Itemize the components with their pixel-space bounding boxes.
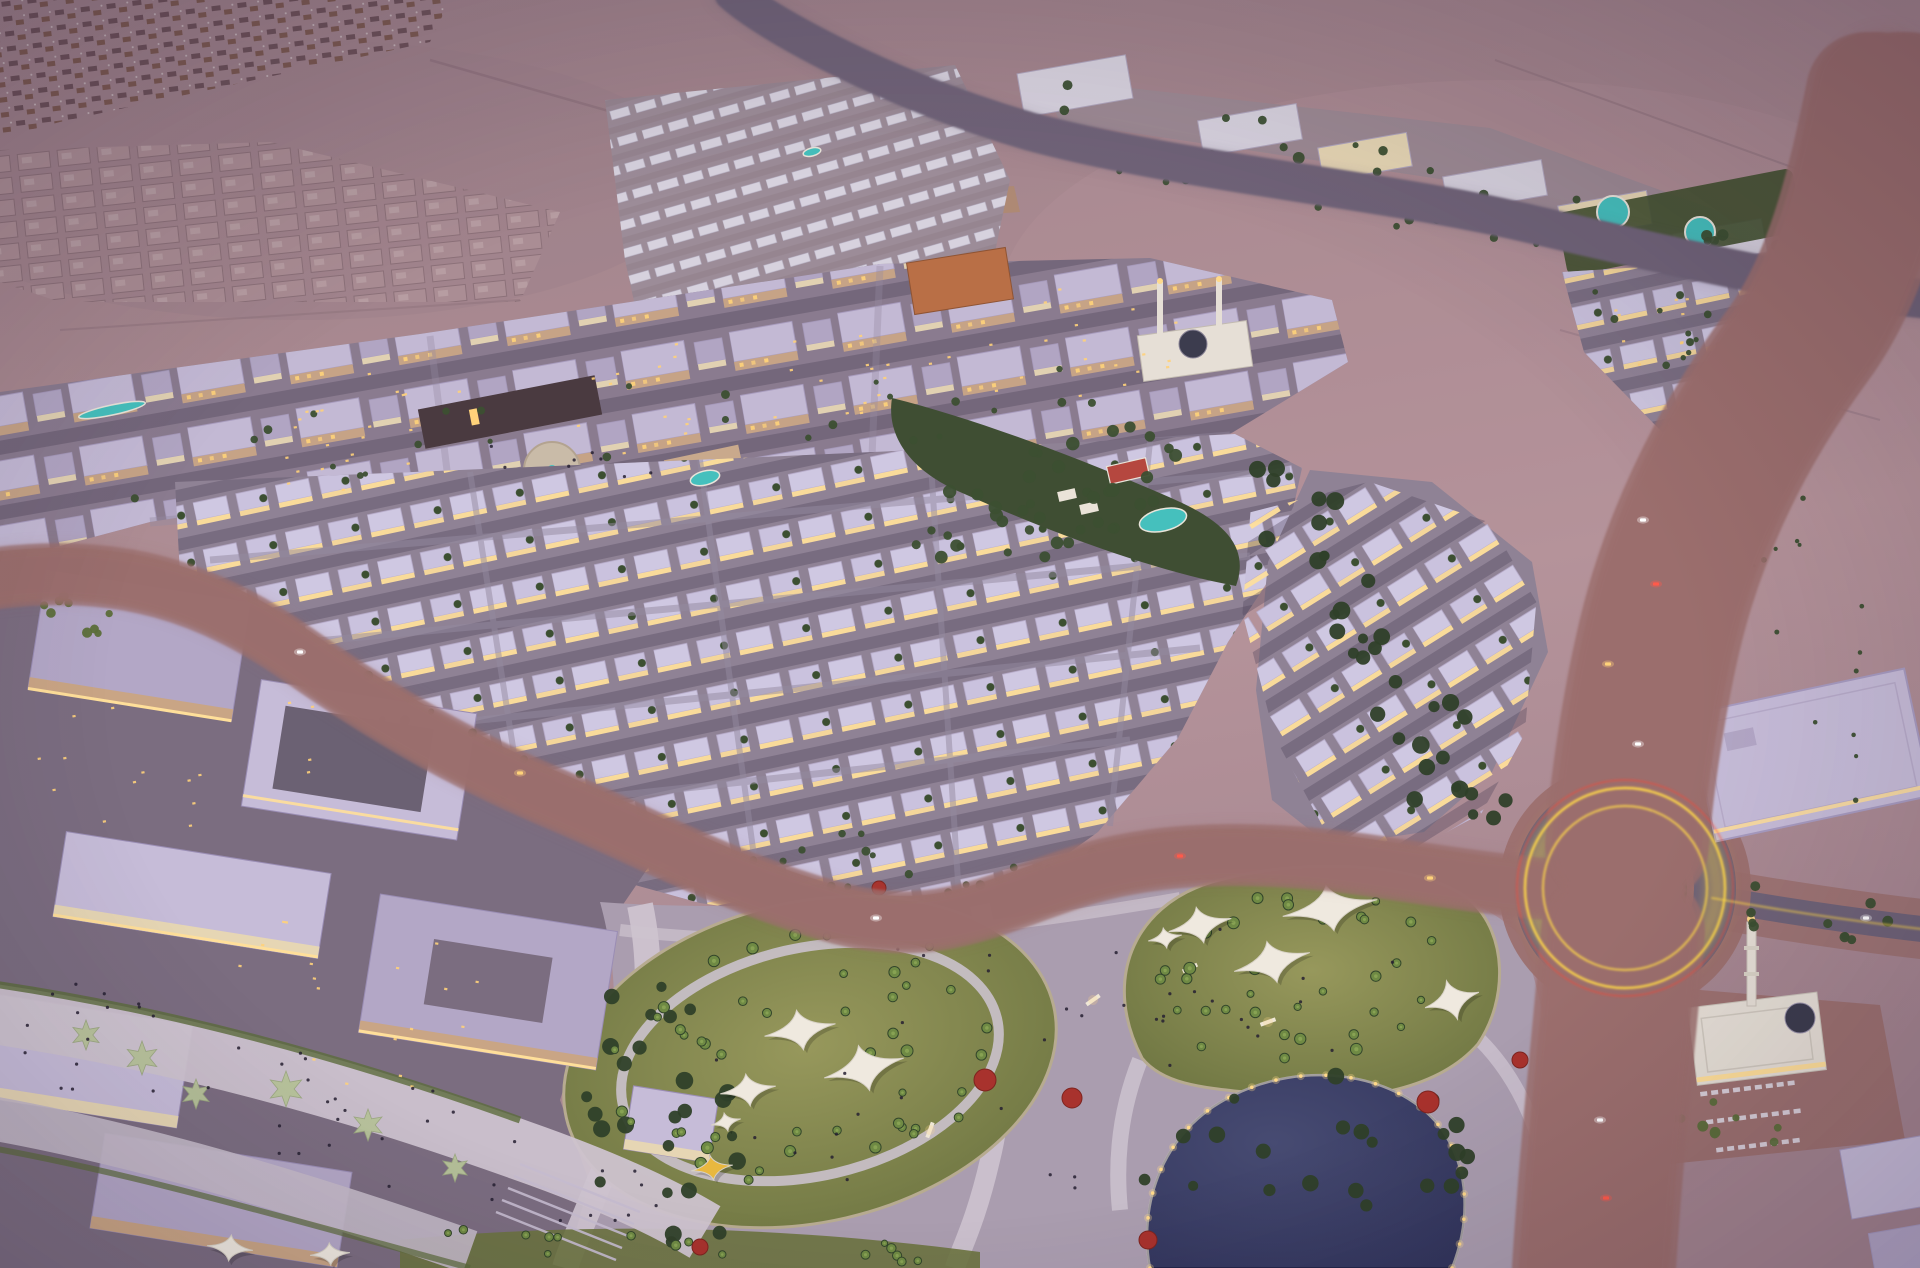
aerial-rendering xyxy=(0,0,1920,1268)
rendering-stage xyxy=(0,0,1920,1268)
dusk-vignette xyxy=(0,0,1920,1268)
